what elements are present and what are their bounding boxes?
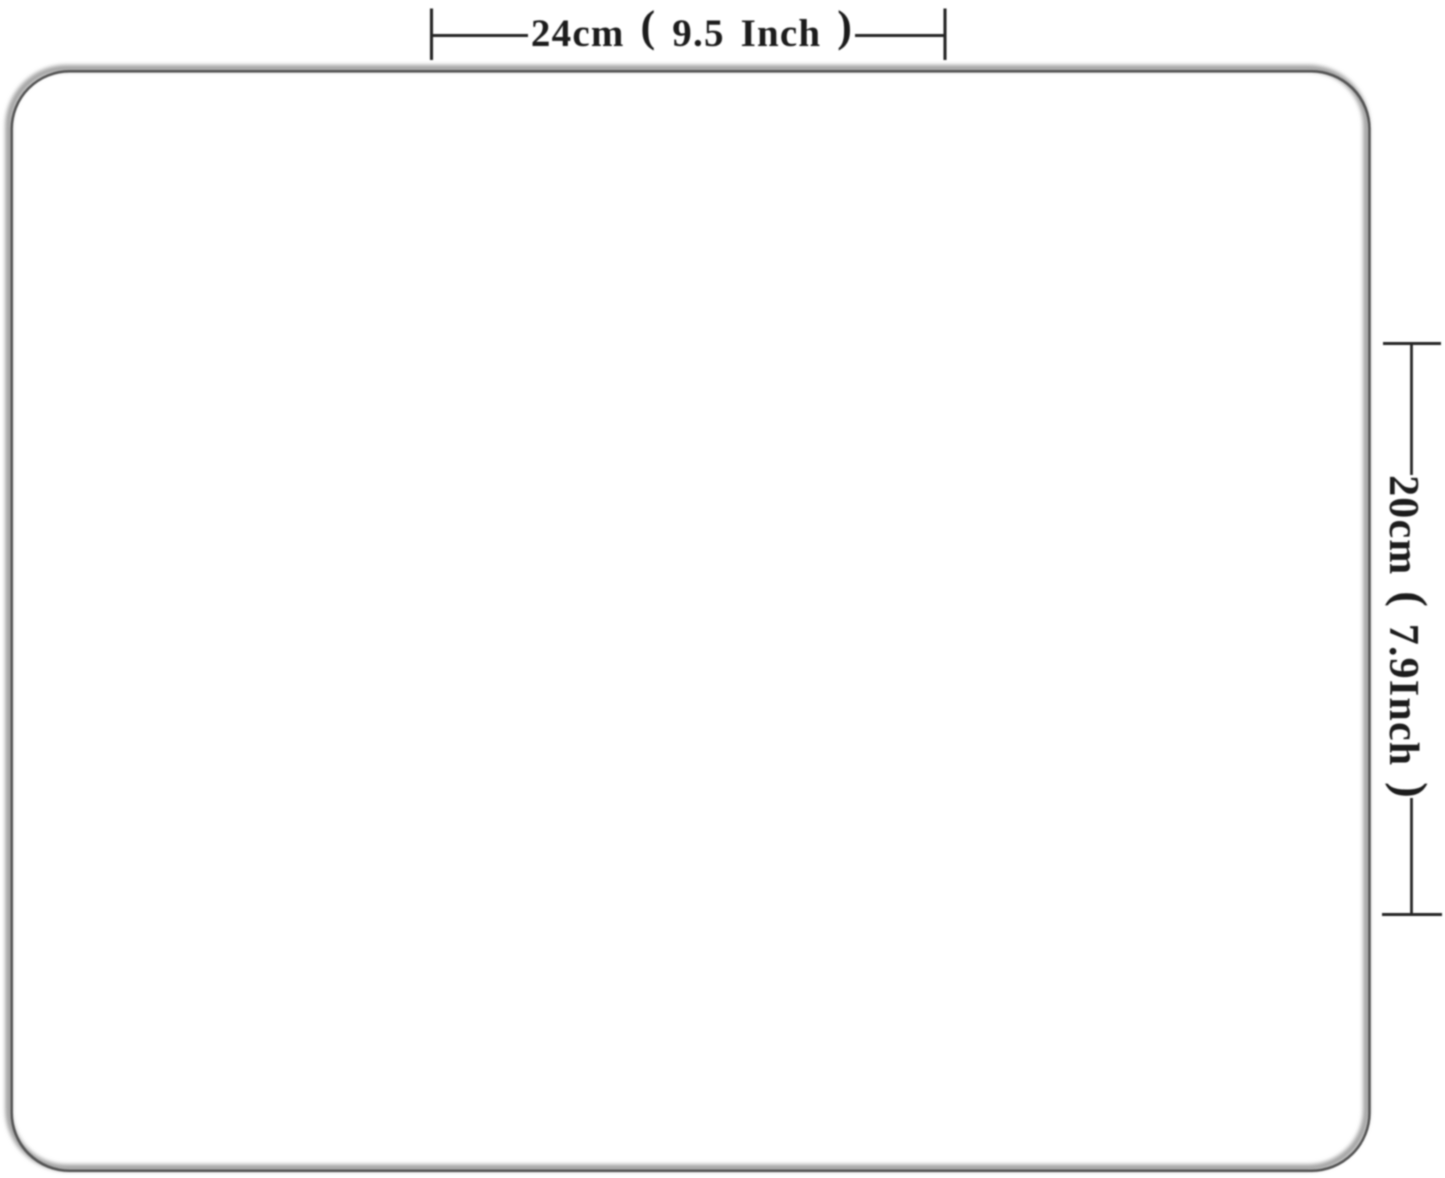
svg-text:20cm ( 7.9Inch ): 20cm ( 7.9Inch ) xyxy=(1380,475,1436,799)
svg-text:24cm ( 9.5 Inch ): 24cm ( 9.5 Inch ) xyxy=(531,2,853,55)
